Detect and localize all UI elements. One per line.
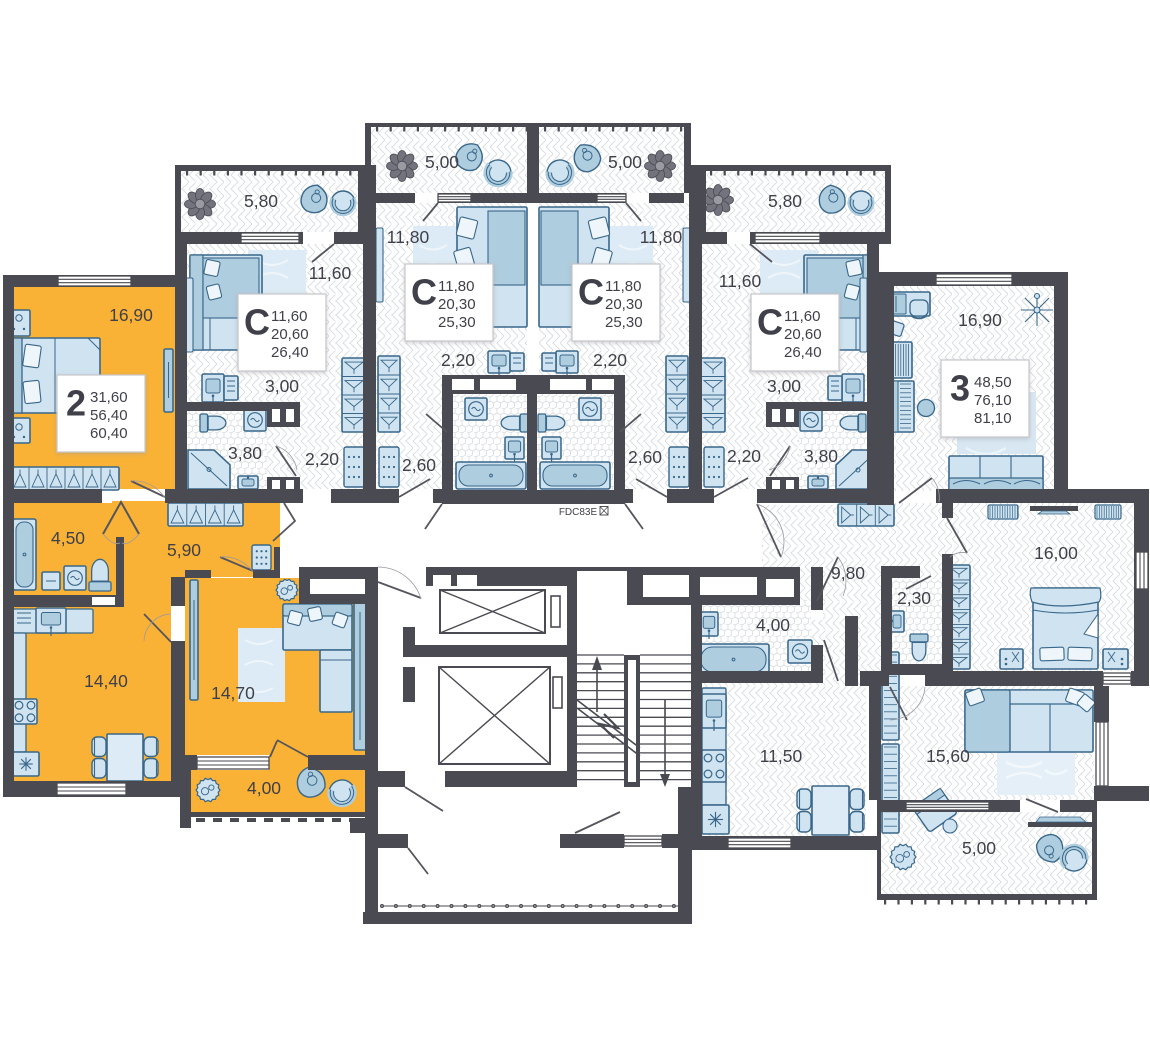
svg-text:20,30: 20,30 (605, 296, 643, 313)
svg-text:5,90: 5,90 (167, 540, 201, 560)
svg-text:20,60: 20,60 (271, 326, 309, 343)
svg-text:2,20: 2,20 (441, 350, 475, 370)
svg-text:5,00: 5,00 (425, 152, 459, 172)
svg-text:11,80: 11,80 (605, 278, 641, 295)
svg-text:14,70: 14,70 (211, 683, 255, 703)
svg-text:15,60: 15,60 (926, 746, 970, 766)
svg-text:2: 2 (66, 383, 86, 424)
svg-text:С: С (411, 272, 437, 313)
svg-text:5,00: 5,00 (962, 838, 996, 858)
svg-text:5,00: 5,00 (608, 152, 642, 172)
svg-text:60,40: 60,40 (90, 425, 128, 442)
svg-text:11,80: 11,80 (387, 227, 430, 247)
svg-text:2,60: 2,60 (628, 447, 662, 467)
svg-text:31,60: 31,60 (90, 389, 128, 406)
svg-text:16,00: 16,00 (1034, 543, 1078, 563)
svg-text:11,60: 11,60 (271, 308, 307, 325)
svg-text:3,00: 3,00 (265, 376, 299, 396)
svg-text:20,60: 20,60 (784, 326, 822, 343)
svg-text:11,80: 11,80 (438, 278, 474, 295)
svg-text:2,20: 2,20 (593, 350, 627, 370)
svg-text:11,50: 11,50 (760, 746, 803, 766)
svg-text:5,80: 5,80 (768, 191, 802, 211)
svg-text:2,60: 2,60 (402, 455, 436, 475)
svg-text:20,30: 20,30 (438, 296, 476, 313)
svg-text:48,50: 48,50 (974, 374, 1012, 391)
svg-text:14,40: 14,40 (84, 671, 128, 691)
svg-text:4,00: 4,00 (247, 778, 281, 798)
svg-text:26,40: 26,40 (271, 344, 309, 361)
svg-text:3: 3 (950, 368, 970, 409)
svg-text:С: С (578, 272, 604, 313)
svg-text:76,10: 76,10 (974, 392, 1012, 409)
svg-text:26,40: 26,40 (784, 344, 822, 361)
svg-text:25,30: 25,30 (605, 314, 643, 331)
svg-text:С: С (244, 302, 270, 343)
svg-text:С: С (757, 302, 783, 343)
svg-text:11,60: 11,60 (719, 271, 762, 291)
svg-text:9,80: 9,80 (831, 563, 865, 583)
svg-text:25,30: 25,30 (438, 314, 476, 331)
svg-text:3,00: 3,00 (767, 376, 801, 396)
svg-text:3,80: 3,80 (804, 446, 838, 466)
svg-text:11,80: 11,80 (640, 227, 683, 247)
svg-text:11,60: 11,60 (309, 263, 352, 283)
svg-text:16,90: 16,90 (958, 310, 1002, 330)
svg-text:5,80: 5,80 (244, 191, 278, 211)
svg-text:2,20: 2,20 (305, 449, 339, 469)
svg-text:81,10: 81,10 (974, 410, 1012, 427)
svg-text:3,80: 3,80 (228, 443, 262, 463)
svg-text:11,60: 11,60 (784, 308, 820, 325)
svg-text:56,40: 56,40 (90, 407, 128, 424)
svg-text:16,90: 16,90 (109, 305, 153, 325)
svg-text:2,30: 2,30 (897, 588, 931, 608)
svg-text:4,00: 4,00 (756, 615, 790, 635)
svg-text:2,20: 2,20 (727, 446, 761, 466)
svg-text:FDC83E: FDC83E (559, 507, 598, 518)
svg-text:4,50: 4,50 (51, 528, 85, 548)
